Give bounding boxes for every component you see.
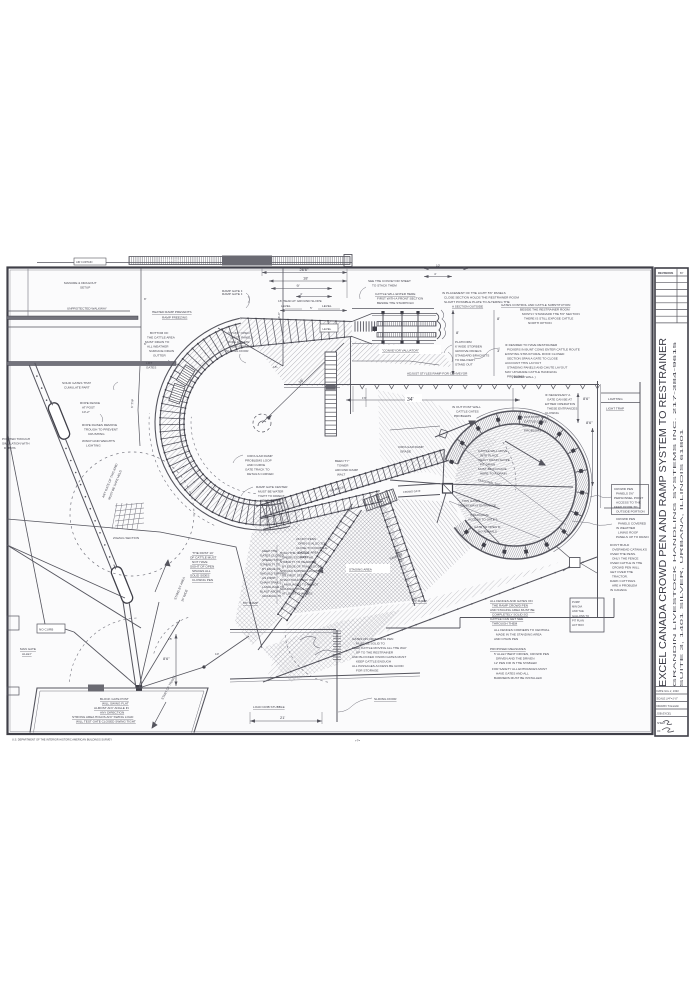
svg-text:+7=: +7= (355, 739, 360, 743)
svg-text:3': 3' (497, 348, 500, 353)
svg-text:LOAD CRIB STUBBLE: LOAD CRIB STUBBLE (253, 705, 285, 709)
svg-text:EXISTING STRUCTURAL ROOF CLOSE: EXISTING STRUCTURAL ROOF CLOSED (505, 352, 565, 356)
svg-text:HEATED RAMP PREVENTS: HEATED RAMP PREVENTS (152, 310, 192, 314)
svg-text:DRIVEN AND THE DRIVEN: DRIVEN AND THE DRIVEN (496, 657, 534, 661)
svg-text:GATES ON CROWDING PEN: GATES ON CROWDING PEN (352, 637, 393, 641)
svg-text:LEVEL: LEVEL (323, 327, 332, 331)
svg-text:DON'T BUILD: DON'T BUILD (610, 543, 630, 547)
svg-text:CATTLE GATES: CATTLE GATES (524, 420, 547, 424)
svg-text:THE RAMP CROWD PEN: THE RAMP CROWD PEN (492, 604, 528, 608)
svg-text:16' HEAD AT GROUND SLOPE: 16' HEAD AT GROUND SLOPE (278, 299, 322, 303)
svg-text:CATTLE CAN GET SEE: CATTLE CAN GET SEE (490, 617, 523, 621)
svg-text:MUST DRAIN TO: MUST DRAIN TO (145, 340, 170, 344)
svg-text:CATTLE AREA: CATTLE AREA (298, 551, 320, 555)
svg-text:MUST BE SOLID TO: MUST BE SOLID TO (356, 642, 385, 646)
svg-text:SLIGHT POSSIBLE PLATE TO ALTER: SLIGHT POSSIBLE PLATE TO ALTERING THE (444, 300, 510, 304)
svg-text:LEVEL: LEVEL (322, 304, 332, 308)
svg-text:JOB EXCEL: JOB EXCEL (657, 712, 672, 716)
svg-text:34': 34' (407, 397, 414, 403)
svg-text:KEEP CATTLE MOVING ALL THE WAY: KEEP CATTLE MOVING ALL THE WAY (352, 646, 407, 650)
svg-text:ONLY THE FENCE: ONLY THE FENCE (612, 557, 638, 561)
svg-text:LIFT: LIFT (146, 361, 152, 365)
svg-text:ANY DIRECTION: ANY DIRECTION (100, 711, 124, 715)
svg-text:BEEN 'TY': BEEN 'TY' (335, 459, 350, 463)
svg-text:RAMP GATE CENTER: RAMP GATE CENTER (256, 485, 288, 489)
svg-text:SOLID SIDES: SOLID SIDES (190, 574, 209, 578)
svg-text:10': 10' (436, 264, 440, 268)
svg-text:"CONVEYOR VALUATOR": "CONVEYOR VALUATOR" (382, 349, 419, 353)
svg-text:LIGHTING: LIGHTING (86, 444, 101, 448)
svg-text:CATTLE WILL MOVE: CATTLE WILL MOVE (478, 449, 508, 453)
svg-text:PROBLEMS: PROBLEMS (454, 414, 471, 418)
svg-text:AS FIRST STEP: AS FIRST STEP (282, 574, 305, 578)
svg-text:-15'-: -15'- (272, 365, 278, 369)
svg-text:10'-2": 10'-2" (82, 410, 90, 414)
svg-text:DARK CUTTINGS: DARK CUTTINGS (610, 579, 635, 583)
svg-text:GALLONS TO: GALLONS TO (572, 614, 589, 618)
svg-text:21': 21' (280, 715, 285, 720)
svg-text:SURFACE DRAIN: SURFACE DRAIN (149, 349, 174, 353)
svg-text:GATE TRACK TO: GATE TRACK TO (245, 468, 270, 472)
svg-text:26'6": 26'6" (300, 267, 309, 272)
svg-text:OF: OF (657, 730, 661, 733)
svg-text:STAND OUT: STAND OUT (455, 363, 473, 367)
svg-text:210 COWHIDE WAY: 210 COWHIDE WAY (160, 259, 184, 263)
svg-text:U.S. DEPARTMENT OF THE INTERI: U.S. DEPARTMENT OF THE INTERIOR HISTORIC… (12, 738, 112, 742)
svg-text:FIRST WITH A FRONT SECTION: FIRST WITH A FRONT SECTION (377, 297, 423, 301)
svg-text:CLOSE TO DOUBBLE: CLOSE TO DOUBBLE (296, 546, 327, 550)
svg-text:AND CURVE: AND CURVE (247, 463, 265, 467)
svg-text:REVISIONS: REVISIONS (658, 271, 673, 275)
svg-text:CHAIN TRAILS: CHAIN TRAILS (260, 581, 281, 585)
svg-text:KEEP THE: KEEP THE (262, 549, 277, 553)
svg-text:5'6" RAMP: 5'6" RAMP (412, 599, 427, 603)
svg-text:TIGHT TO DIRECT: TIGHT TO DIRECT (258, 494, 285, 498)
svg-text:OPEN IS ALSO TOO: OPEN IS ALSO TOO (298, 542, 328, 546)
svg-text:OUTSIDE PORTION: OUTSIDE PORTION (616, 510, 645, 514)
svg-text:BESIDE THE RESTRAINER ROOM: BESIDE THE RESTRAINER ROOM (520, 308, 570, 312)
svg-text:SETUP: SETUP (80, 286, 90, 290)
svg-text:6' TYP: 6' TYP (130, 399, 135, 408)
svg-text:GRID: GRID (300, 555, 309, 559)
svg-text:OF CATTLE MUST: OF CATTLE MUST (190, 556, 217, 560)
svg-text:THROUGH THEM: THROUGH THEM (492, 622, 518, 626)
svg-text:MOSTLY STANDARD THE 5'6" SECTI: MOSTLY STANDARD THE 5'6" SECTION (522, 312, 580, 316)
svg-text:GATE TO OPEN IF: GATE TO OPEN IF (474, 525, 501, 529)
svg-text:RAMP FREEZING: RAMP FREEZING (162, 316, 188, 320)
svg-text:DRAWN T.Grandin: DRAWN T.Grandin (657, 704, 680, 708)
svg-text:IF NECESSARY A: IF NECESSARY A (545, 393, 571, 397)
svg-text:MIN DIA: MIN DIA (572, 605, 582, 609)
svg-text:AIR CURTAIN: AIR CURTAIN (76, 260, 92, 264)
svg-text:1'6": 1'6" (362, 396, 367, 400)
svg-text:MUST BE WATER: MUST BE WATER (258, 490, 284, 494)
svg-text:18': 18' (303, 276, 308, 281)
svg-text:AND BLOCKED VISION GATES MUST: AND BLOCKED VISION GATES MUST (352, 655, 406, 659)
svg-text:SIGHT OF OPEN: SIGHT OF OPEN (190, 565, 214, 569)
svg-text:A SECTION OUTSIDE: A SECTION OUTSIDE (452, 305, 483, 309)
svg-text:DATE Nov 2, 1991: DATE Nov 2, 1991 (657, 689, 680, 693)
svg-text:IN WEATHER: IN WEATHER (616, 526, 636, 530)
svg-text:TO STACK THEM: TO STACK THEM (372, 284, 397, 288)
svg-text:ACCOUNT THIS LAYOUT: ACCOUNT THIS LAYOUT (505, 361, 541, 365)
svg-text:PIT DRAIN: PIT DRAIN (480, 463, 495, 467)
svg-text:LANGUAGES TO AS NOT: LANGUAGES TO AS NOT (282, 583, 319, 587)
svg-text:AND THE: AND THE (572, 609, 584, 613)
svg-text:BLOCK GATE POST: BLOCK GATE POST (100, 697, 129, 701)
svg-text:ROPE FENCE: ROPE FENCE (80, 401, 100, 405)
svg-text:INTO PLACE: INTO PLACE (480, 454, 498, 458)
svg-text:BY EDGE OF: BY EDGE OF (262, 567, 281, 571)
svg-text:ARE A PROBLEM: ARE A PROBLEM (612, 584, 637, 588)
svg-text:PROPOSED MEASURES: PROPOSED MEASURES (490, 647, 526, 651)
svg-text:TROUGH TO PREVENT: TROUGH TO PREVENT (84, 428, 118, 432)
svg-text:SPACES ALL: SPACES ALL (192, 569, 211, 573)
svg-text:EITHER OPERATION: EITHER OPERATION (545, 402, 575, 406)
svg-text:CIRCULAR RAMP: CIRCULAR RAMP (398, 445, 424, 449)
svg-text:ACCESS TO THE: ACCESS TO THE (616, 501, 641, 505)
svg-text:SCALE 1/4"=1'-0": SCALE 1/4"=1'-0" (657, 697, 679, 701)
svg-text:NO CURB: NO CURB (39, 628, 53, 632)
svg-text:PANELS COVERED: PANELS COVERED (618, 522, 647, 526)
svg-text:SHOULD SUPPER LOCATION: SHOULD SUPPER LOCATION (280, 569, 323, 573)
svg-text:WILL SWING FLAT: WILL SWING FLAT (102, 702, 129, 706)
svg-text:OVER THE PENS.: OVER THE PENS. (610, 552, 636, 556)
svg-text:GUTTER: GUTTER (153, 354, 166, 358)
svg-text:8'6": 8'6" (586, 420, 593, 425)
svg-text:MADE IN THE STANDING AREA: MADE IN THE STANDING AREA (496, 633, 543, 637)
svg-text:ALLEY: ALLEY (22, 652, 32, 656)
svg-text:GROOVE PANELS: GROOVE PANELS (455, 349, 481, 353)
svg-text:MAY UPGRADE CATTLE HANDLING: MAY UPGRADE CATTLE HANDLING (505, 370, 558, 374)
svg-text:ALMOST ANY ANGLE IN: ALMOST ANY ANGLE IN (94, 706, 129, 710)
svg-text:GRANDIN LIVESTOCK HANDLING SY: GRANDIN LIVESTOCK HANDLING SYSTEMS INC. … (672, 341, 677, 687)
svg-text:SLIDING DOOR: SLIDING DOOR (374, 697, 397, 701)
svg-text:AND STAGING AREA MUST BE: AND STAGING AREA MUST BE (490, 608, 535, 612)
svg-text:STABILITY TO HEARDER: STABILITY TO HEARDER (280, 560, 317, 564)
svg-text:10': 10' (215, 652, 219, 656)
svg-text:UP TO THE RESTRAINER: UP TO THE RESTRAINER (356, 651, 394, 655)
svg-text:POINTED TROUGH: POINTED TROUGH (2, 437, 30, 441)
svg-text:THIS GATES: THIS GATES (462, 499, 480, 503)
svg-text:GATES: GATES (146, 366, 156, 370)
svg-text:SHEER STOP AT THE: SHEER STOP AT THE (282, 556, 313, 560)
svg-text:MANURE & DRAGOUT: MANURE & DRAGOUT (64, 281, 97, 285)
svg-text:SOLID GATES THAT: SOLID GATES THAT (62, 381, 91, 385)
svg-text:THERE IS STILL EXPOSE CATTLE: THERE IS STILL EXPOSE CATTLE (524, 317, 573, 321)
svg-text:THE CATTLE AREA: THE CATTLE AREA (147, 336, 176, 340)
svg-text:OVERHEAD CATWALKS: OVERHEAD CATWALKS (612, 548, 647, 552)
svg-text:SIMULATION WITH: SIMULATION WITH (2, 442, 29, 446)
svg-text:STANDARD BRACKETS: STANDARD BRACKETS (455, 354, 489, 358)
svg-text:SEE THE CONVEYOR SHEET: SEE THE CONVEYOR SHEET (368, 279, 411, 283)
svg-text:6' WIDE STORBEN: 6' WIDE STORBEN (455, 345, 482, 349)
svg-text:FEED DOOR TO: FEED DOOR TO (614, 505, 638, 509)
svg-text:PIT PLAN: PIT PLAN (572, 618, 584, 622)
svg-text:WALT: WALT (337, 473, 345, 477)
svg-text:LIGHT TRAP: LIGHT TRAP (606, 407, 624, 411)
svg-text:AND CHAIN PEN: AND CHAIN PEN (494, 637, 518, 641)
svg-text:GATES CONTROL AND CATTLE SUBST: GATES CONTROL AND CATTLE SUBSTITUTION (501, 303, 570, 307)
svg-text:PANELS UP TO DRAIN: PANELS UP TO DRAIN (616, 535, 649, 539)
svg-text:5'6" RAMP: 5'6" RAMP (243, 601, 258, 605)
svg-text:8'6": 8'6" (583, 396, 590, 401)
svg-text:8'6": 8'6" (163, 656, 170, 661)
svg-text:LIGHTING: LIGHTING (608, 397, 623, 401)
svg-text:CLOSING PEN: CLOSING PEN (192, 578, 213, 582)
svg-text:8': 8' (456, 330, 459, 335)
svg-text:GRADUAL TRAIL 70: GRADUAL TRAIL 70 (280, 587, 309, 591)
svg-text:PLATFORM: PLATFORM (455, 340, 472, 344)
svg-text:BOTTOM OF: BOTTOM OF (150, 331, 168, 335)
svg-text:BLAST ABOVE: BLAST ABOVE (260, 590, 281, 594)
svg-text:FOR STORAGE: FOR STORAGE (356, 669, 378, 673)
svg-text:HAVE GATES AND ALL: HAVE GATES AND ALL (496, 672, 529, 676)
svg-text:SUITE 3, 1401 SILVER, URBANA,: SUITE 3, 1401 SILVER, URBANA, ILLINOIS 6… (679, 427, 684, 687)
svg-text:HERE TO A DRAIN: HERE TO A DRAIN (480, 472, 507, 476)
svg-text:8': 8' (497, 316, 500, 321)
svg-text:26 NOT PENS: 26 NOT PENS (296, 537, 316, 541)
svg-text:12' PEN FIR IN THE STABLER: 12' PEN FIR IN THE STABLER (494, 661, 538, 665)
svg-text:SWINGS: SWINGS (522, 424, 535, 428)
svg-text:PROBLEMS LOOP: PROBLEMS LOOP (245, 459, 272, 463)
svg-text:LEVEL: LEVEL (281, 304, 291, 308)
svg-text:OVER CATTLE IN THE: OVER CATTLE IN THE (610, 561, 642, 565)
svg-text:STRONG AREA HOLDS ANY SWING LO: STRONG AREA HOLDS ANY SWING LOAD (72, 715, 134, 719)
svg-text:KEEP CATTLE ENOUGH: KEEP CATTLE ENOUGH (356, 660, 391, 664)
svg-text:IN OUT POST WALL: IN OUT POST WALL (520, 415, 549, 419)
svg-text:TOWER: TOWER (337, 464, 349, 468)
svg-text:MAN GATE: MAN GATE (20, 647, 36, 651)
svg-text:PUMP: PUMP (572, 600, 580, 604)
svg-text:GET OVER THE: GET OVER THE (610, 570, 633, 574)
svg-text:IN PLACEMENT OF THE LIGHT 5'6": IN PLACEMENT OF THE LIGHT 5'6" PANELS (442, 291, 506, 295)
svg-text:RAMP GATE ¢: RAMP GATE ¢ (222, 289, 243, 293)
svg-text:PROBLEMS: PROBLEMS (507, 375, 524, 379)
svg-text:CHAIN TRAILS MAY BE: CHAIN TRAILS MAY BE (280, 578, 314, 582)
svg-text:HEAVY DRAIN SLOPE: HEAVY DRAIN SLOPE (478, 458, 510, 462)
svg-text:15': 15' (168, 637, 172, 641)
svg-text:PROBLEMS: PROBLEMS (524, 429, 541, 433)
svg-text:9': 9' (297, 283, 300, 288)
svg-text:AS FIRST: AS FIRST (262, 576, 276, 580)
svg-text:IF DESIRED TO HAVE RESTRAINER: IF DESIRED TO HAVE RESTRAINER (505, 343, 558, 347)
svg-text:COMPLETELY SOLID SO: COMPLETELY SOLID SO (492, 613, 529, 617)
svg-text:'THE FIRST 10': 'THE FIRST 10' (192, 551, 214, 555)
svg-text:STABILITY TO: STABILITY TO (260, 563, 281, 567)
svg-text:LIFT BOX: LIFT BOX (572, 623, 584, 627)
svg-text:WILL TEST GATE CLOSED SWING TI: WILL TEST GATE CLOSED SWING TIGHT (76, 720, 136, 724)
svg-text:NO ANIMALS: NO ANIMALS (478, 530, 497, 534)
svg-text:BARRIERS MUST BE INSTALLED: BARRIERS MUST BE INSTALLED (494, 676, 543, 680)
svg-text:DETAILS CURVED: DETAILS CURVED (247, 472, 274, 476)
svg-text:AT POST: AT POST (82, 406, 95, 410)
svg-text:ALL WEATHER: ALL WEATHER (147, 345, 169, 349)
svg-text:DEBRIS: DEBRIS (4, 446, 16, 450)
svg-text:BY: BY (680, 271, 684, 275)
svg-text:FOR SAFETY ALL ENTRANCES MUST: FOR SAFETY ALL ENTRANCES MUST (492, 667, 547, 671)
svg-text:AROUND RAMP: AROUND RAMP (335, 468, 358, 472)
svg-text:SHEET: SHEET (657, 722, 666, 725)
svg-text:GATE CAN BE AT: GATE CAN BE AT (547, 398, 572, 402)
svg-text:ADJUST STYLES RAMP FOR CONVEYO: ADJUST STYLES RAMP FOR CONVEYOR (407, 372, 468, 376)
svg-text:5' ALLEY BENT DRIVEN, CROWD P: 5' ALLEY BENT DRIVEN, CROWD PEN (494, 652, 549, 656)
svg-text:ALL PASSAGES ACCESS BE GOOD: ALL PASSAGES ACCESS BE GOOD (352, 664, 404, 668)
svg-text:THESE ENTRANCES: THESE ENTRANCES (547, 407, 577, 411)
svg-text:CATTLE GATES: CATTLE GATES (456, 410, 479, 414)
svg-text:GRADUAL 70: GRADUAL 70 (262, 594, 281, 598)
svg-text:NOT HAVE: NOT HAVE (192, 560, 208, 564)
svg-text:CUMULATE PART: CUMULATE PART (64, 386, 90, 390)
svg-text:CROWD PEN: CROWD PEN (616, 517, 635, 521)
svg-text:ROPE RAISES REMOVE: ROPE RAISES REMOVE (82, 423, 117, 427)
svg-text:PERSONNEL POINT: PERSONNEL POINT (614, 496, 643, 500)
svg-text:EXCEL CANADA CROWD PEN AND RA: EXCEL CANADA CROWD PEN AND RAMP SYSTEM T… (658, 338, 669, 687)
svg-text:TRACTOR.: TRACTOR. (612, 575, 628, 579)
svg-text:PANELS 5'6": PANELS 5'6" (616, 492, 634, 496)
svg-text:CROWD PEN: CROWD PEN (614, 487, 633, 491)
svg-text:CIRCULAR RAMP: CIRCULAR RAMP (247, 454, 273, 458)
svg-text:NORTH OPTION: NORTH OPTION (528, 321, 552, 325)
svg-text:PICKERS IN BUNT COWS ENTER CAT: PICKERS IN BUNT COWS ENTER CATTLE ROUTE (507, 348, 580, 352)
svg-text:SHEER STOP: SHEER STOP (262, 558, 282, 562)
svg-text:ACCESS TO GATE 5: ACCESS TO GATE 5 (468, 518, 498, 522)
svg-text:AT LEAST CHANGES: AT LEAST CHANGES (282, 592, 312, 596)
svg-text:IN CANADA: IN CANADA (610, 588, 628, 592)
svg-text:CATTLE WILL ENTER HERE: CATTLE WILL ENTER HERE (375, 292, 415, 296)
svg-text:WINCH AND WEIGHTS: WINCH AND WEIGHTS (82, 439, 115, 443)
svg-text:SECTION SPAN A GATE TO CLOSE: SECTION SPAN A GATE TO CLOSE (507, 357, 558, 361)
svg-text:TO DELIVERY: TO DELIVERY (455, 358, 475, 362)
svg-text:MUST BE IN PLACE: MUST BE IN PLACE (478, 467, 507, 471)
svg-text:STANDING PANELS AND CHUTE LAY: STANDING PANELS AND CHUTE LAYOUT (507, 366, 567, 370)
svg-text:BESIDE THE STAIRHOLD: BESIDE THE STAIRHOLD (377, 301, 414, 305)
svg-text:UNPROTECTED WALKWAY: UNPROTECTED WALKWAY (67, 307, 107, 311)
svg-text:CROWD PEN WILL: CROWD PEN WILL (612, 566, 640, 570)
svg-text:ALL FENCES AND GATES ON: ALL FENCES AND GATES ON (490, 599, 533, 603)
svg-text:LINING ROOF: LINING ROOF (618, 531, 638, 535)
svg-text:CRUSHING: CRUSHING (88, 432, 105, 436)
svg-text:STAGING AREA: STAGING AREA (349, 568, 373, 572)
svg-text:GRADE: GRADE (400, 450, 411, 454)
svg-text:IN OUT POST WALL: IN OUT POST WALL (452, 405, 481, 409)
svg-text:ALL FENCES CORNERS TO CENTRAL: ALL FENCES CORNERS TO CENTRAL (494, 628, 550, 632)
svg-text:ZIGZAG SECTION: ZIGZAG SECTION (113, 536, 139, 540)
svg-text:CLOSE SECTION HOLDS THE RESTRA: CLOSE SECTION HOLDS THE RESTRAINER ROOM (444, 296, 519, 300)
svg-text:BY EDGE OF TRAIL LOOSE: BY EDGE OF TRAIL LOOSE (282, 565, 322, 569)
